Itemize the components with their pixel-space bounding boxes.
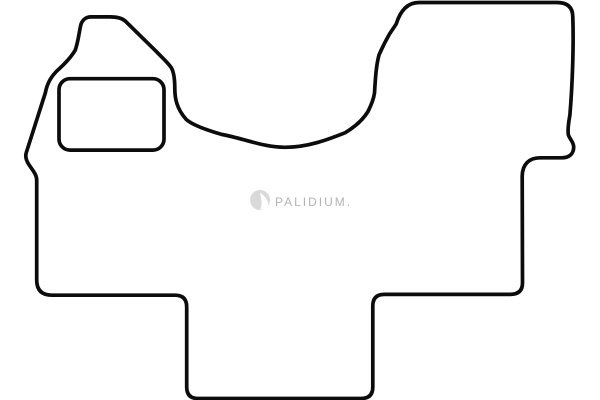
svg-text:PALIDIUM.: PALIDIUM. xyxy=(275,195,352,209)
